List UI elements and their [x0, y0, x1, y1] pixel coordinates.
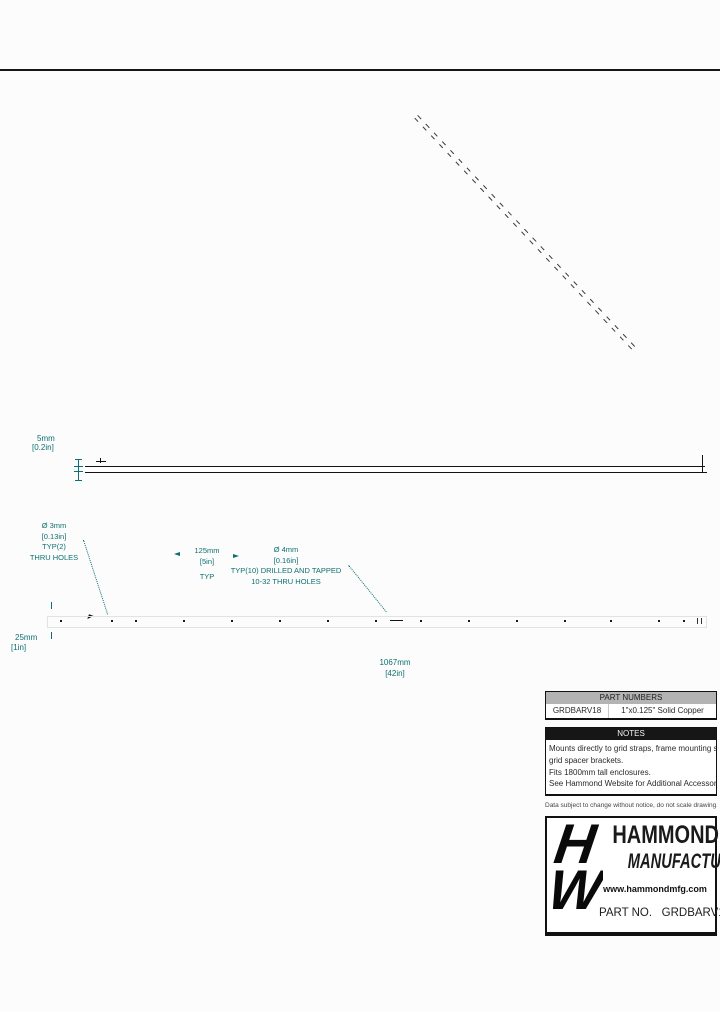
part-numbers-table: PART NUMBERS GRDBARV18 1"x0.125" Solid C… — [545, 691, 717, 720]
note-line-3: Fits 1800mm tall enclosures. — [546, 767, 716, 779]
company-area: HAMMOND MANUFACTURING™ www.hammondmfg.co… — [599, 818, 711, 919]
hole4-diameter: Ø 4mm — [228, 545, 344, 556]
side-bar-right-tick — [702, 455, 703, 473]
company-name-text: HAMMOND — [612, 822, 719, 848]
side-bar-right-foot — [702, 472, 707, 473]
hole-dot — [375, 620, 377, 622]
note-pitch: 125mm [5in] TYP — [183, 546, 231, 583]
notes-body: Mounts directly to grid straps, frame mo… — [546, 740, 716, 794]
dim-thickness-line — [78, 459, 79, 481]
hole-dot — [279, 620, 281, 622]
note-line-1: Mounts directly to grid straps, frame mo… — [546, 743, 716, 755]
note-line-4: See Hammond Website for Additional Acces… — [546, 778, 716, 790]
hole-dot — [183, 620, 185, 622]
offset-tick-top — [51, 602, 52, 609]
note-line-2: grid spacer brackets. — [546, 755, 716, 767]
top-view-end-tick-2 — [701, 618, 702, 624]
pictorial-edge-top — [417, 115, 638, 350]
company-name-line2: MANUFACTURING™ — [599, 848, 711, 873]
side-view-bar — [85, 466, 705, 473]
company-manufacturing-text: MANUFACTURING™ — [628, 848, 720, 873]
dim-thickness-in: [0.2in] — [32, 443, 54, 453]
top-border-rule — [0, 69, 720, 71]
hole3-inches: [0.13in] — [14, 532, 94, 543]
title-block: H W HAMMOND MANUFACTURING™ www.hammondmf… — [545, 816, 717, 936]
pictorial-edge-bottom — [414, 118, 635, 353]
hole4-inches: [0.16in] — [228, 556, 344, 567]
part-numbers-row: GRDBARV18 1"x0.125" Solid Copper — [546, 704, 716, 718]
part-no-value: GRDBARV18 — [662, 907, 720, 919]
part-numbers-header: PART NUMBERS — [546, 692, 716, 704]
drawing-page: 5mm [0.2in] Ø 3mm [0.13in] TYP(2) THRU H… — [0, 0, 720, 1012]
dim-offset-in: [1in] — [11, 643, 26, 653]
hole-dot — [231, 620, 233, 622]
dim-thickness-tick-1 — [74, 466, 83, 467]
hole-dot — [420, 620, 422, 622]
hole4-typ: TYP(10) DRILLED AND TAPPED — [228, 566, 344, 577]
company-name-line1: HAMMOND — [599, 822, 711, 848]
pitch-typ: TYP — [183, 572, 231, 583]
leader-tapped-holes — [348, 565, 387, 612]
hole4-desc: 10-32 THRU HOLES — [228, 577, 344, 588]
website-text: www.hammondmfg.com — [599, 884, 711, 894]
part-no-label: PART NO. — [599, 907, 652, 919]
hole-dot — [564, 620, 566, 622]
note-tapped-holes: Ø 4mm [0.16in] TYP(10) DRILLED AND TAPPE… — [228, 545, 344, 587]
hole-dot — [610, 620, 612, 622]
hammond-logo-icon: H W — [549, 818, 603, 928]
length-in: [42in] — [368, 669, 422, 680]
pictorial-isometric-bar — [414, 115, 638, 353]
offset-tick-bottom — [51, 632, 52, 639]
dim-thickness-cap-bottom — [75, 480, 82, 481]
pitch-inches: [5in] — [183, 557, 231, 568]
part-description-cell: 1"x0.125" Solid Copper — [608, 704, 716, 718]
hole3-desc: THRU HOLES — [14, 553, 94, 564]
top-view-end-tick-1 — [697, 618, 698, 624]
hole3-typ: TYP(2) — [14, 542, 94, 553]
hole-dot — [60, 620, 62, 622]
leader-thru-holes — [83, 540, 108, 614]
part-number-line: PART NO. GRDBARV18 — [599, 907, 711, 919]
dim-thickness-cap-top — [75, 459, 82, 460]
logo-letter-bottom: W — [549, 862, 603, 918]
hole-dot — [468, 620, 470, 622]
hole-dot — [135, 620, 137, 622]
hole-dot — [516, 620, 518, 622]
hole-dot — [683, 620, 685, 622]
notes-table: NOTES Mounts directly to grid straps, fr… — [545, 727, 717, 796]
hole-dot — [658, 620, 660, 622]
part-number-cell: GRDBARV18 — [546, 704, 608, 718]
note-thru-holes: Ø 3mm [0.13in] TYP(2) THRU HOLES — [14, 521, 94, 563]
length-mm: 1067mm — [368, 658, 422, 669]
pitch-arrow-left — [174, 552, 180, 556]
notes-header: NOTES — [546, 728, 716, 740]
top-view-bar — [47, 616, 707, 628]
dim-offset-mm: 25mm — [15, 633, 37, 643]
hole-dot — [111, 620, 113, 622]
pitch-mm: 125mm — [183, 546, 231, 557]
dim-length: 1067mm [42in] — [368, 658, 422, 679]
hole-dot — [327, 620, 329, 622]
dim-thickness-tick-2 — [74, 471, 83, 472]
disclaimer-text: Data subject to change without notice, d… — [545, 802, 717, 809]
hole3-diameter: Ø 3mm — [14, 521, 94, 532]
side-bar-left-extension — [96, 461, 106, 462]
side-bar-left-tick — [100, 458, 101, 463]
